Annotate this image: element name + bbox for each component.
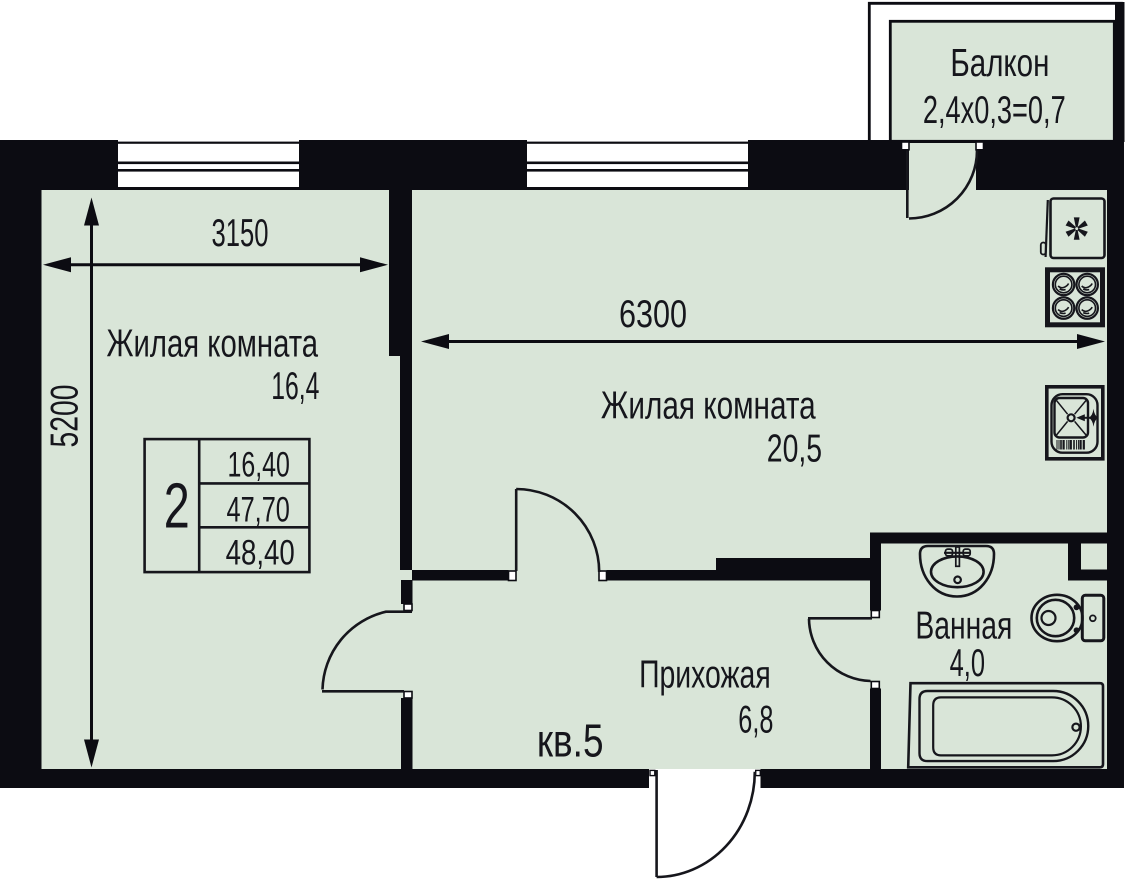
svg-text:5200: 5200	[44, 385, 87, 448]
svg-text:3150: 3150	[212, 212, 269, 255]
svg-text:16,40: 16,40	[228, 446, 290, 485]
svg-text:2,4х0,3=0,7: 2,4х0,3=0,7	[923, 89, 1066, 132]
svg-text:Балкон: Балкон	[950, 42, 1049, 85]
svg-text:4,0: 4,0	[950, 642, 985, 685]
svg-text:48,40: 48,40	[226, 533, 295, 572]
svg-text:Ванная: Ванная	[915, 604, 1012, 647]
svg-text:6300: 6300	[619, 293, 687, 336]
svg-text:6,8: 6,8	[738, 699, 773, 742]
svg-text:Прихожая: Прихожая	[639, 653, 771, 696]
svg-text:2: 2	[164, 469, 190, 541]
svg-text:кв.5: кв.5	[537, 714, 604, 766]
svg-text:20,5: 20,5	[767, 428, 822, 471]
svg-text:Жилая комната: Жилая комната	[107, 323, 319, 366]
svg-text:47,70: 47,70	[227, 490, 290, 529]
svg-text:16,4: 16,4	[271, 365, 319, 408]
svg-text:Жилая комната: Жилая комната	[601, 384, 816, 427]
